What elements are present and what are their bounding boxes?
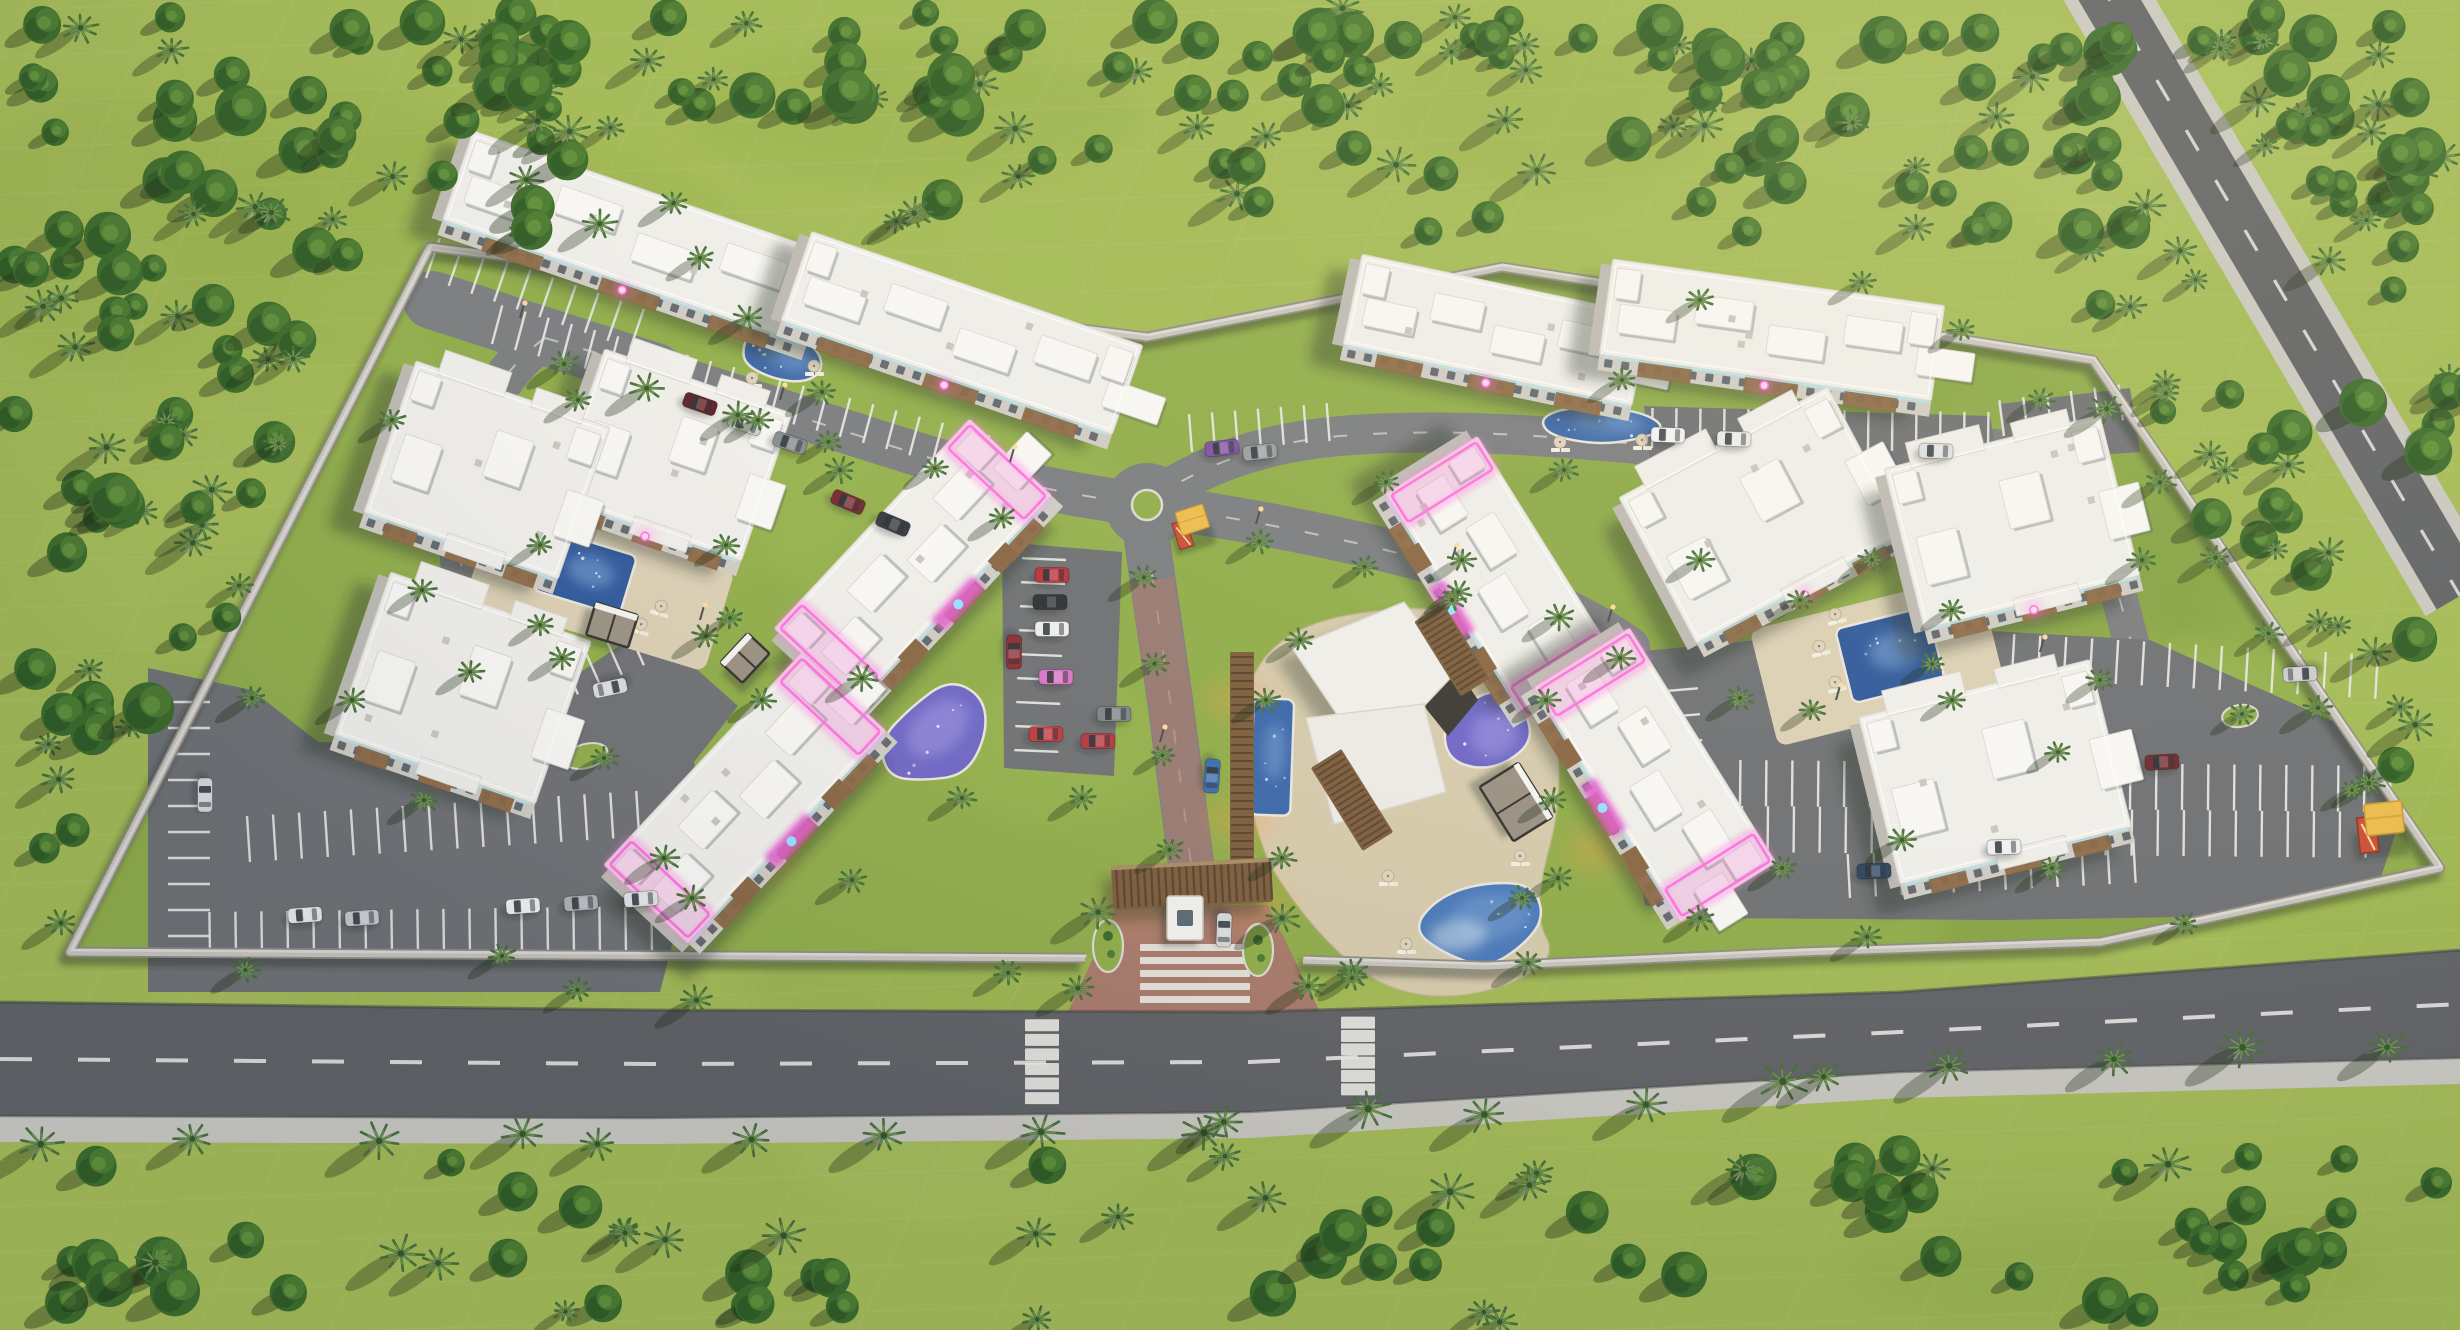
road-crossing-block (1341, 1083, 1375, 1095)
palm-crown (398, 1250, 405, 1257)
car-rear-window (2169, 755, 2175, 767)
car (1092, 707, 1131, 727)
car-roof (520, 900, 530, 912)
car-roof (638, 893, 648, 905)
car-windshield (1037, 728, 1044, 740)
palm-crown (622, 1230, 627, 1235)
palm-crown (1946, 1062, 1953, 1069)
car-rear-window (1053, 728, 1058, 740)
road-crossing-block (1025, 1034, 1059, 1046)
car (1034, 670, 1073, 690)
palm-crown (881, 1132, 888, 1139)
palm-crown (190, 1136, 196, 1142)
palm-crown (1677, 43, 1681, 47)
palm-crown (519, 1131, 525, 1137)
palm-crown (662, 1237, 668, 1243)
aerial-render-canvas (0, 0, 2460, 1330)
palm-crown (291, 356, 296, 361)
palm-crown (2218, 46, 2222, 50)
facade-window (1430, 367, 1439, 376)
driveway-crosswalk-stripe (1140, 970, 1250, 977)
palm-crown (1234, 191, 1240, 197)
car-rear-window (1063, 671, 1068, 683)
car-roof (2294, 668, 2304, 679)
palm-crown (1365, 1105, 1372, 1112)
palm-crown (977, 81, 983, 87)
car (1002, 630, 1022, 669)
car-windshield (199, 786, 211, 793)
car-roof (1049, 570, 1058, 581)
palm-crown (1447, 1188, 1454, 1195)
car-rear-window (199, 802, 211, 807)
palm-crown (1135, 69, 1140, 74)
driveway-crosswalk-stripe (1140, 983, 1250, 990)
car-roof (1256, 446, 1266, 458)
palm-crown (2213, 555, 2218, 560)
car-windshield (1105, 708, 1112, 720)
palm-crown (744, 21, 748, 25)
road-crossing-block (1025, 1019, 1059, 1031)
palm-crown (152, 1259, 159, 1266)
palm-crown (78, 25, 83, 30)
palm-crown (2261, 40, 2265, 44)
palm-crown (390, 174, 395, 179)
palm-crown (567, 128, 573, 134)
facade-window (1613, 406, 1622, 415)
facade-window (1347, 349, 1356, 358)
car-rear-window (1881, 865, 1886, 877)
palm-crown (2178, 248, 2183, 253)
car-windshield (1047, 671, 1054, 683)
car-rear-window (312, 908, 318, 920)
palm-crown (2104, 406, 2109, 411)
palm-crown (1363, 565, 1367, 569)
road-crossing-block (1025, 1048, 1059, 1060)
palm-crown (933, 466, 937, 470)
car-roof (1009, 649, 1020, 658)
palm-crown (1393, 162, 1399, 168)
car-rear-window (1008, 659, 1020, 664)
car-windshield (1089, 735, 1096, 747)
palm-crown (88, 667, 92, 671)
car (1028, 595, 1067, 615)
palm-crown (1263, 1195, 1269, 1201)
palm-crown (458, 36, 463, 41)
palm-crown (1914, 225, 1919, 230)
palm-crown (1195, 125, 1200, 130)
car (193, 773, 213, 812)
palm-crown (269, 210, 275, 216)
road-crossing-block (1025, 1078, 1059, 1090)
palm-crown (1821, 1074, 1827, 1080)
car-rear-window (369, 911, 375, 923)
palm-crown (2285, 462, 2290, 467)
car-roof (359, 912, 369, 924)
palm-crown (1167, 848, 1171, 852)
car-rear-window (1057, 596, 1062, 608)
palm-crown (780, 1232, 787, 1239)
palm-crown (2143, 203, 2149, 209)
palm-crown (190, 540, 196, 546)
roof-ac-unit (1404, 327, 1412, 335)
palm-crown (2158, 480, 2163, 485)
palm-crown (2326, 258, 2331, 263)
facade-window (1546, 392, 1555, 401)
car-rear-window (1675, 429, 1680, 441)
palm-crown (2365, 218, 2369, 222)
facade-window (1604, 359, 1613, 368)
palm-crown (1449, 49, 1453, 53)
palm-crown (2208, 452, 2212, 456)
car (1030, 568, 1069, 588)
palm-crown (1038, 1128, 1045, 1135)
car-roof (1047, 597, 1056, 608)
road-crossing-block (1025, 1063, 1059, 1075)
pool-lap (1251, 699, 1293, 814)
palm-crown (2326, 550, 2331, 555)
palm-crown (2239, 1044, 2246, 1051)
palm-crown (104, 444, 110, 450)
car-windshield (1008, 643, 1020, 650)
palm-crown (376, 1138, 383, 1145)
palm-crown (2369, 130, 2374, 135)
road-crossing-block (1341, 1017, 1375, 1029)
roof-ac-unit (1745, 331, 1753, 339)
car-roof (1731, 433, 1740, 444)
facade-window (1363, 353, 1372, 362)
palm-crown (2317, 620, 2321, 624)
car (1024, 727, 1063, 747)
palm-crown (37, 1141, 44, 1148)
driveway-crosswalk-stripe (1140, 996, 1250, 1003)
car-rear-window (1943, 445, 1948, 457)
road-crossing-block (1341, 1030, 1375, 1042)
car-roof (1095, 736, 1104, 747)
palm-crown (1779, 1078, 1786, 1085)
roof-ac-unit (1728, 315, 1736, 323)
car-rear-window (1059, 569, 1064, 581)
palm-crown (1012, 126, 1018, 132)
palm-crown (209, 487, 215, 493)
palm-crown (40, 304, 46, 310)
palm-crown (59, 921, 64, 926)
roof-ac-unit (1737, 340, 1745, 348)
palm-crown (1221, 1119, 1227, 1125)
palm-crown (1994, 114, 1999, 119)
car-rear-window (1105, 735, 1110, 747)
median-shrub (1257, 954, 1265, 962)
palm-crown (645, 58, 650, 63)
palm-crown (2030, 74, 2035, 79)
penthouse (1907, 311, 1937, 346)
car-roof (1043, 729, 1052, 740)
car-windshield (1043, 623, 1050, 635)
palm-crown (1482, 1310, 1487, 1315)
facade-window (1722, 376, 1731, 385)
palm-crown (1033, 1231, 1039, 1237)
palm-crown (2384, 1044, 2390, 1050)
facade-window (1529, 388, 1538, 397)
palm-crown (2263, 143, 2267, 147)
roof-ac-unit (1547, 323, 1555, 331)
car-roof (1049, 624, 1058, 635)
palm-crown (1497, 1319, 1503, 1325)
palm-crown (1913, 165, 1917, 169)
palm-crown (1741, 1166, 1747, 1172)
car-roof (1871, 865, 1880, 876)
palm-crown (164, 420, 168, 424)
car-roof (1053, 672, 1062, 683)
car-roof (1933, 445, 1942, 456)
palm-crown (826, 440, 830, 444)
palm-crown (644, 386, 649, 391)
palm-crown (608, 126, 612, 130)
palm-crown (1481, 1111, 1488, 1118)
palm-crown (1522, 42, 1527, 47)
palm-crown (47, 742, 51, 746)
palm-crown (2377, 52, 2382, 57)
palm-crown (671, 201, 675, 205)
car-roof (302, 909, 312, 921)
palm-crown (1643, 1101, 1649, 1107)
palm-crown (564, 1310, 568, 1314)
car-windshield (1041, 596, 1048, 608)
car-rear-window (1205, 783, 1217, 789)
penthouse (1613, 268, 1641, 301)
car-roof (1218, 927, 1229, 936)
palm-crown (1534, 168, 1540, 174)
palm-crown (735, 413, 740, 418)
neon-palm-logo (1481, 378, 1490, 387)
road-crossing-block (1341, 1057, 1375, 1069)
car-roof (200, 792, 211, 801)
car-roof (2001, 841, 2010, 852)
palm-crown (1264, 134, 1269, 139)
facade-window (1907, 402, 1916, 411)
palm-crown (1453, 15, 1458, 20)
palm-crown (1035, 1317, 1040, 1322)
car-windshield (1043, 569, 1050, 581)
palm-crown (435, 1260, 441, 1266)
palm-crown (597, 221, 602, 226)
booth-window (1177, 910, 1193, 926)
palm-crown (1702, 123, 1708, 129)
car-rear-window (588, 896, 594, 908)
palm-crown (1524, 68, 1529, 73)
palm-crown (2128, 304, 2133, 309)
car (1076, 734, 1115, 754)
palm-crown (56, 777, 61, 782)
palm-crown (72, 344, 78, 350)
car-roof (2159, 756, 2169, 767)
palm-crown (1142, 575, 1146, 579)
car-roof (1111, 709, 1120, 720)
palm-crown (191, 212, 196, 217)
palm-crown (712, 77, 716, 81)
road-crossing-block (1341, 1043, 1375, 1055)
palm-crown (2412, 722, 2418, 728)
median-shrub (1107, 950, 1115, 958)
palm-crown (237, 584, 241, 588)
palm-crown (1340, 5, 1346, 11)
facade-window (1446, 371, 1455, 380)
palm-crown (252, 204, 258, 210)
road-crossing-block (1025, 1092, 1059, 1104)
palm-crown (1930, 1166, 1935, 1171)
car-roof (1206, 773, 1218, 783)
palm-crown (1378, 83, 1382, 87)
palm-crown (1502, 117, 1508, 123)
palm-crown (911, 210, 917, 216)
palm-crown (562, 362, 567, 367)
palm-crown (749, 1137, 755, 1143)
palm-crown (276, 441, 280, 445)
palm-crown (1257, 539, 1261, 543)
road-crossing-block (1341, 1070, 1375, 1082)
aerial-site-render (0, 0, 2460, 1330)
palm-crown (169, 48, 174, 53)
car-roof (1665, 429, 1674, 440)
car-rear-window (1059, 623, 1064, 635)
palm-crown (1851, 120, 1856, 125)
palm-crown (1223, 1154, 1228, 1159)
car-rear-window (648, 892, 654, 904)
palm-crown (331, 217, 335, 221)
driveway-crosswalk-stripe (1140, 957, 1250, 964)
car-roof (1218, 442, 1228, 454)
palm-crown (594, 1141, 600, 1147)
palm-crown (2165, 1161, 2172, 1168)
palm-crown (1557, 615, 1562, 620)
palm-crown (1161, 754, 1165, 758)
car-rear-window (530, 899, 536, 911)
palm-crown (2111, 1056, 2117, 1062)
car (1030, 622, 1069, 642)
car-roof (578, 897, 588, 909)
palm-crown (1116, 1214, 1121, 1219)
car-rear-window (1218, 937, 1230, 942)
palm-crown (1526, 1182, 1532, 1188)
car-rear-window (1121, 708, 1126, 720)
median-shrub (1103, 931, 1113, 941)
palm-crown (1152, 661, 1156, 665)
car-rear-window (2011, 841, 2016, 853)
neon-palm-logo (1760, 381, 1769, 390)
car-rear-window (1741, 433, 1746, 445)
facade-window (1705, 373, 1714, 382)
palm-crown (2267, 631, 2271, 635)
palm-crown (2194, 278, 2198, 282)
junction-island (1132, 490, 1162, 520)
car-rear-window (2288, 668, 2294, 680)
